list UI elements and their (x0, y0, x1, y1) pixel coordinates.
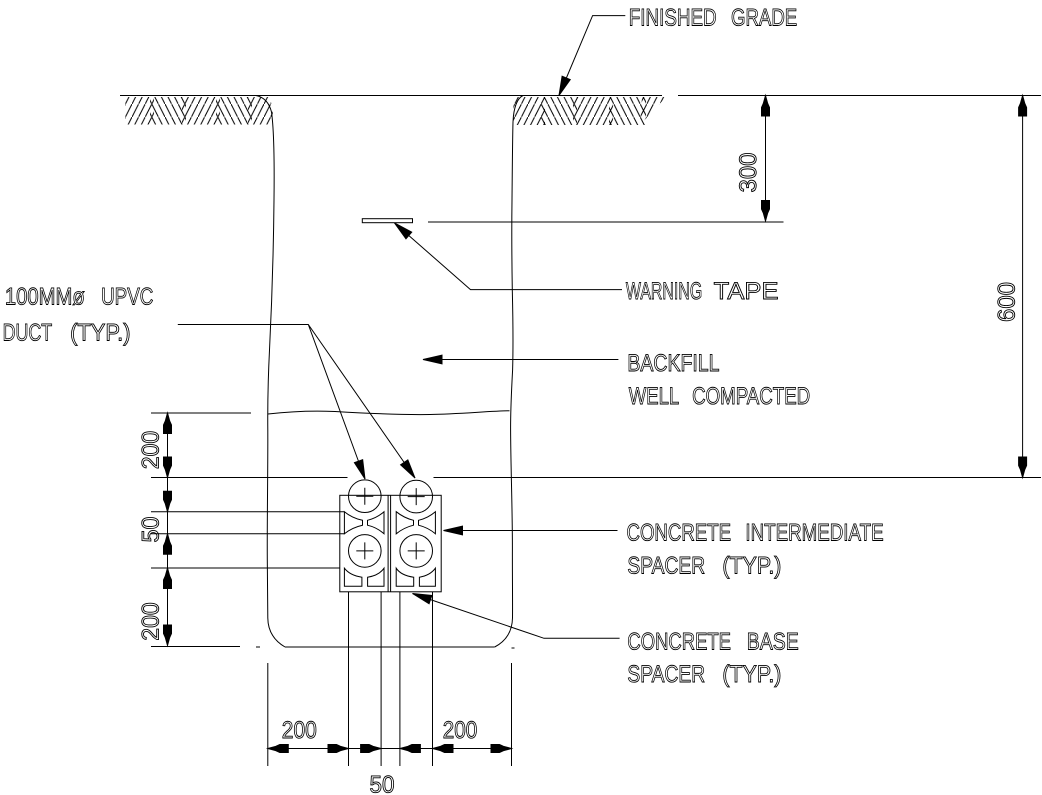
svg-text:DUCT: DUCT (3, 320, 53, 347)
svg-text:50: 50 (370, 772, 395, 795)
svg-text:COMPACTED: COMPACTED (692, 383, 810, 410)
svg-text:200: 200 (138, 431, 165, 470)
svg-text:TAPE: TAPE (714, 278, 779, 305)
svg-text:CONCRETE: CONCRETE (627, 519, 732, 546)
svg-text:(TYP.): (TYP.) (722, 661, 781, 688)
svg-text:200: 200 (282, 717, 317, 744)
svg-text:BACKFILL: BACKFILL (627, 350, 719, 377)
svg-text:UPVC: UPVC (101, 283, 153, 310)
svg-text:BASE: BASE (747, 629, 799, 656)
svg-text:100MMø: 100MMø (5, 283, 85, 310)
svg-text:INTERMEDIATE: INTERMEDIATE (745, 519, 883, 546)
svg-text:GRADE: GRADE (731, 4, 797, 31)
svg-text:(TYP.): (TYP.) (70, 320, 130, 347)
svg-text:200: 200 (138, 602, 165, 641)
svg-text:200: 200 (443, 717, 478, 744)
svg-text:SPACER: SPACER (627, 661, 705, 688)
svg-text:WARNING: WARNING (626, 278, 702, 305)
svg-text:(TYP.): (TYP.) (722, 552, 781, 579)
svg-text:300: 300 (735, 153, 762, 193)
svg-text:SPACER: SPACER (627, 552, 705, 579)
svg-text:50: 50 (138, 517, 165, 543)
svg-text:CONCRETE: CONCRETE (627, 629, 731, 656)
svg-text:WELL: WELL (629, 383, 679, 410)
svg-text:FINISHED: FINISHED (629, 4, 717, 31)
svg-text:600: 600 (994, 282, 1021, 322)
